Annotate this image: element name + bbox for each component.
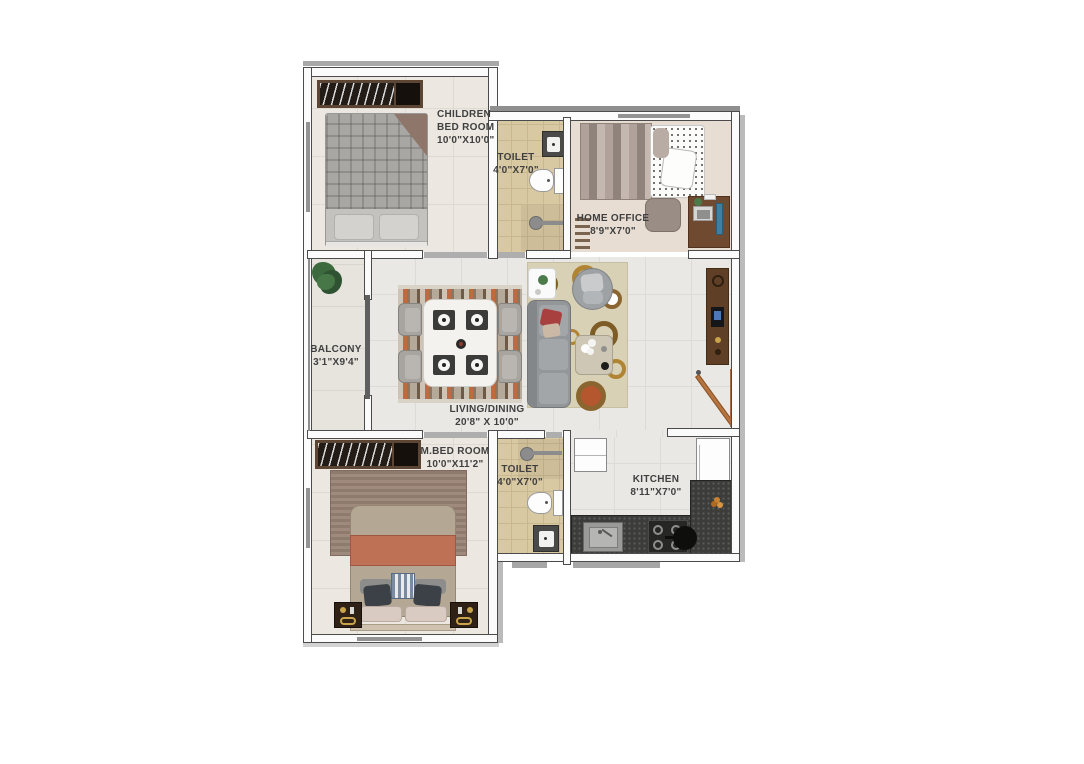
master-bed-pillow-pink [405,606,447,622]
master-bed [350,505,458,632]
wall [731,111,740,562]
coffee-table [575,335,613,375]
desk-paper [704,194,716,200]
window [306,488,310,548]
office-pouf [645,198,681,232]
desk-books [716,203,723,235]
dining-table [423,299,497,387]
laptop [693,206,713,221]
washbasin [533,525,559,552]
room-label-children-bedroom: CHILDREN BED ROOM 10'0"X10'0" [437,108,495,147]
wall [526,250,571,259]
master-bed-pillow-navy [413,584,442,608]
master-bed-pillow-navy [363,584,392,608]
master-bed-pillow-pink [360,606,402,622]
room-label-master-bedroom: M.BED ROOM 10'0"X11'2" [420,445,489,471]
desk-plant [694,198,702,206]
side-table-plant [538,275,548,285]
cooking-pan [673,526,697,550]
dining-chair [398,350,422,383]
kitchen-sink [583,522,623,552]
wall [488,553,740,562]
wall-shadow [740,115,745,562]
master-wardrobe [315,440,421,469]
dining-chair [498,350,522,383]
wardrobe-shelf [394,83,420,105]
shower-area [521,205,564,251]
door-opening [424,252,487,258]
window-ledge [573,562,660,568]
shower-arm [541,221,563,225]
wall [488,111,740,121]
toilet-wc [527,490,563,517]
kitchen-counter-right [690,480,733,557]
floor-plan: CHILDREN BED ROOM 10'0"X10'0" TOILET 4'0… [303,65,740,643]
wall [563,117,571,259]
wall-shadow [490,106,740,111]
children-wardrobe [317,80,423,108]
wall [688,250,740,259]
placemat [433,310,455,330]
master-bed-runner-pillow [391,573,415,599]
nightstand [450,602,478,628]
wall [303,67,497,77]
children-bed-pillow [379,214,419,240]
sofa-pillow-beige [542,323,561,338]
master-bed-footboard [350,624,456,631]
room-label-toilet-lower: TOILET 4'0"X7'0" [497,463,543,489]
placemat [433,355,455,375]
window-ledge [512,562,547,568]
wall [497,430,545,439]
room-label-home-office: HOME OFFICE 8'9"X7'0" [577,212,650,238]
wall-shadow [498,562,503,643]
shower-arm [532,451,562,455]
placemat [466,310,488,330]
kitchen-flower-decor [711,497,723,509]
tv-screen [711,307,724,327]
nightstand [334,602,362,628]
wall [307,430,423,439]
floor-plan-page: { "floor_plan": { "rooms": [ {"id": "chi… [0,0,1084,764]
door-opening [498,252,525,258]
room-label-kitchen: KITCHEN 8'11"X7'0" [630,473,681,499]
office-bolster [653,128,669,158]
dining-chair [398,303,422,336]
wall-shadow [303,61,499,66]
window [306,122,310,212]
children-bed-pillow [334,214,374,240]
master-bed-band [350,535,456,566]
placemat [466,355,488,375]
sliding-door [365,295,370,399]
dining-chair [498,303,522,336]
balcony-plant [312,262,342,298]
wall [667,428,740,437]
wall [364,250,372,300]
room-label-balcony: BALCONY 3'1"X9'4" [310,343,362,369]
door-opening [424,432,487,438]
door-opening [546,432,562,438]
side-table [528,268,556,299]
tv-unit [706,268,729,365]
sofa [527,300,571,408]
armchair [572,268,613,310]
table-centerpiece [456,339,466,349]
wall [563,430,571,565]
office-daybed-striped [580,123,652,200]
washbasin [542,131,564,157]
children-bed [325,113,428,247]
kitchen-cabinet [574,438,607,472]
window [618,114,690,118]
room-label-living-dining: LIVING/DINING 20'8" X 10'0" [449,403,524,429]
room-label-toilet-upper: TOILET 4'0"X7'0" [493,151,539,177]
office-desk [688,196,730,248]
entrance-door-handle [696,370,701,375]
children-bed-footboard [326,241,427,247]
wall-shadow [303,643,499,647]
wardrobe-shelf [392,443,418,466]
window [357,637,422,641]
